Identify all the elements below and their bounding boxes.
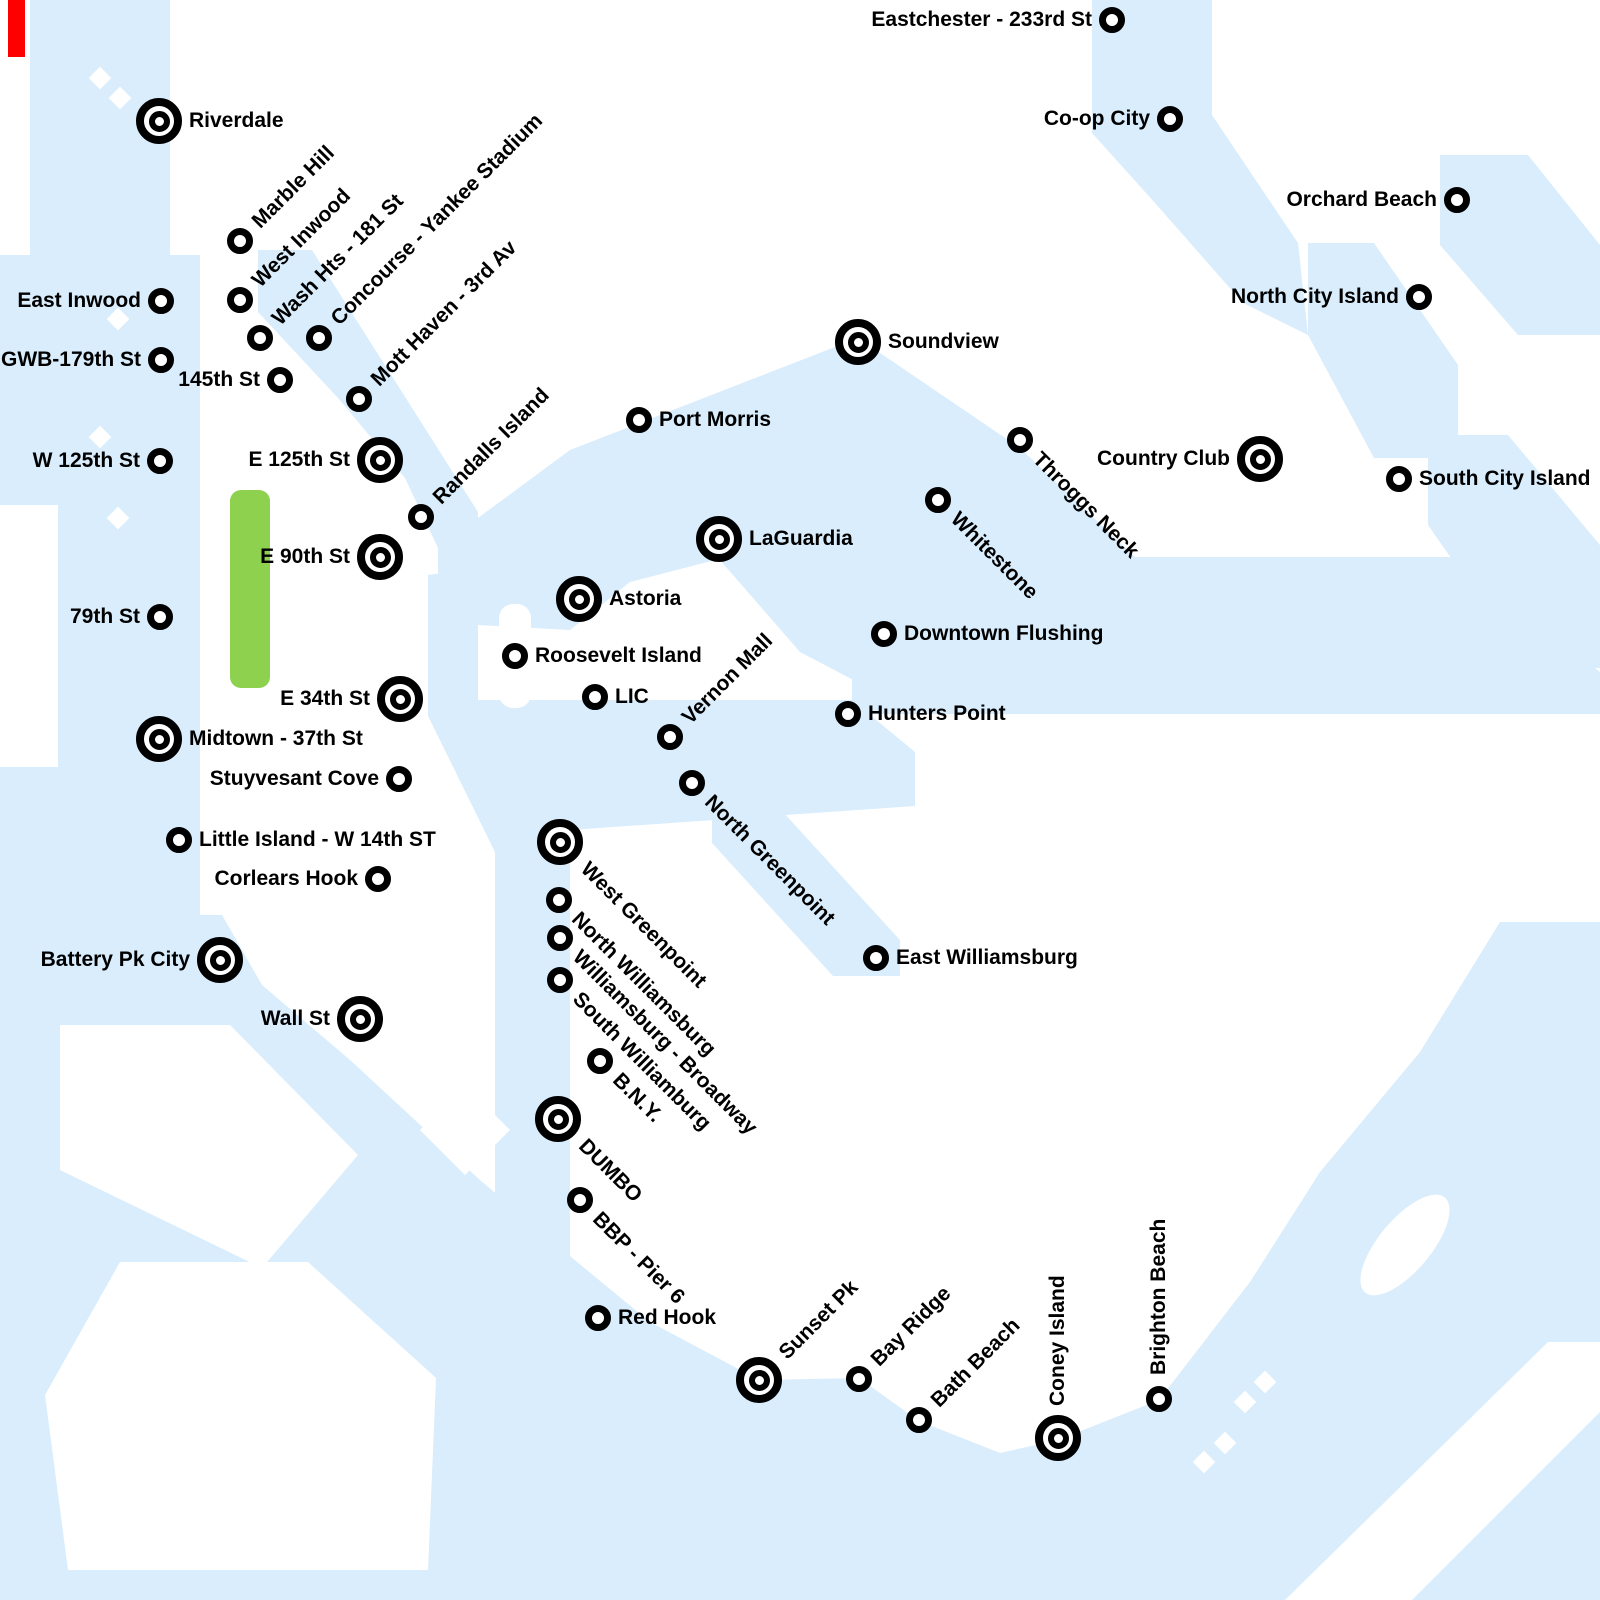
terminal-bullseye-marker[interactable] [337, 996, 383, 1042]
terminal-bullseye-marker[interactable] [197, 937, 243, 983]
stop-circle-marker[interactable] [148, 347, 174, 373]
stop-circle-marker[interactable] [679, 770, 705, 796]
station-label: Orchard Beach [1286, 189, 1437, 211]
stop-circle-marker[interactable] [148, 288, 174, 314]
station-label: LaGuardia [749, 528, 853, 550]
stop-circle-marker[interactable] [626, 407, 652, 433]
station-label: East Inwood [17, 290, 141, 312]
station-label: E 34th St [280, 688, 370, 710]
stop-circle-marker[interactable] [147, 604, 173, 630]
bullseye-inner-ring [569, 589, 590, 610]
terminal-bullseye-marker[interactable] [1035, 1415, 1081, 1461]
stop-circle-marker[interactable] [502, 643, 528, 669]
station-label: 145th St [178, 369, 260, 391]
city-island-channel [1308, 243, 1458, 458]
station-label: E 90th St [260, 546, 350, 568]
stop-circle-marker[interactable] [1157, 106, 1183, 132]
station-label: Country Club [1097, 448, 1230, 470]
station-label: 79th St [70, 606, 140, 628]
stop-circle-marker[interactable] [306, 325, 332, 351]
station-label: Hunters Point [868, 703, 1006, 725]
stop-circle-marker[interactable] [835, 701, 861, 727]
stop-circle-marker[interactable] [247, 325, 273, 351]
station-label: Battery Pk City [41, 949, 190, 971]
stop-circle-marker[interactable] [346, 386, 372, 412]
bullseye-inner-ring [550, 832, 571, 853]
terminal-bullseye-marker[interactable] [696, 516, 742, 562]
terminal-bullseye-marker[interactable] [136, 716, 182, 762]
station-label: East Williamsburg [896, 947, 1078, 969]
station-label: Little Island - W 14th ST [199, 829, 436, 851]
stop-circle-marker[interactable] [567, 1187, 593, 1213]
central-park [230, 490, 270, 688]
bullseye-inner-ring [210, 950, 231, 971]
station-label: Port Morris [659, 409, 771, 431]
station-label: Downtown Flushing [904, 623, 1103, 645]
bullseye-inner-ring [548, 1109, 569, 1130]
bullseye-inner-ring [1250, 449, 1271, 470]
station-label: North City Island [1231, 286, 1399, 308]
terminal-bullseye-marker[interactable] [736, 1357, 782, 1403]
stop-circle-marker[interactable] [147, 448, 173, 474]
station-label: Co-op City [1044, 108, 1150, 130]
bullseye-inner-ring [390, 689, 411, 710]
station-label: Soundview [888, 331, 999, 353]
terminal-bullseye-marker[interactable] [136, 98, 182, 144]
stop-circle-marker[interactable] [585, 1305, 611, 1331]
station-label: Coney Island [1047, 1275, 1069, 1406]
stop-circle-marker[interactable] [267, 367, 293, 393]
terminal-bullseye-marker[interactable] [357, 437, 403, 483]
stop-circle-marker[interactable] [846, 1366, 872, 1392]
stop-circle-marker[interactable] [166, 827, 192, 853]
station-label: GWB-179th St [1, 349, 141, 371]
stop-circle-marker[interactable] [386, 766, 412, 792]
station-label: Riverdale [189, 110, 284, 132]
station-label: Roosevelt Island [535, 645, 702, 667]
stop-circle-marker[interactable] [1146, 1386, 1172, 1412]
stop-circle-marker[interactable] [365, 866, 391, 892]
bullseye-inner-ring [370, 547, 391, 568]
stop-circle-marker[interactable] [906, 1407, 932, 1433]
stop-circle-marker[interactable] [1386, 466, 1412, 492]
terminal-bullseye-marker[interactable] [357, 534, 403, 580]
stop-circle-marker[interactable] [547, 967, 573, 993]
stop-circle-marker[interactable] [547, 925, 573, 951]
bullseye-inner-ring [709, 529, 730, 550]
stop-circle-marker[interactable] [657, 724, 683, 750]
station-label: Eastchester - 233rd St [871, 9, 1092, 31]
station-label: Astoria [609, 588, 681, 610]
stop-circle-marker[interactable] [408, 504, 434, 530]
bullseye-inner-ring [149, 111, 170, 132]
top-right-inlet [1440, 155, 1600, 335]
stop-circle-marker[interactable] [925, 487, 951, 513]
stop-circle-marker[interactable] [1406, 284, 1432, 310]
station-label: E 125th St [248, 449, 350, 471]
stop-circle-marker[interactable] [871, 621, 897, 647]
terminal-bullseye-marker[interactable] [537, 819, 583, 865]
station-label: South City Island [1419, 468, 1591, 490]
stop-circle-marker[interactable] [546, 887, 572, 913]
stop-circle-marker[interactable] [1007, 427, 1033, 453]
left-shore-notch [0, 505, 58, 767]
station-label: Stuyvesant Cove [210, 768, 379, 790]
stop-circle-marker[interactable] [587, 1048, 613, 1074]
ferry-map: Eastchester - 233rd StRiverdaleCo-op Cit… [0, 0, 1600, 1600]
terminal-bullseye-marker[interactable] [535, 1096, 581, 1142]
station-label: Corlears Hook [214, 868, 358, 890]
stop-circle-marker[interactable] [1099, 7, 1125, 33]
red-marker [8, 0, 25, 57]
station-label: Midtown - 37th St [189, 728, 363, 750]
bullseye-inner-ring [848, 332, 869, 353]
station-label: LIC [615, 686, 649, 708]
stop-circle-marker[interactable] [227, 228, 253, 254]
station-label: Wall St [261, 1008, 330, 1030]
station-label: Red Hook [618, 1307, 716, 1329]
terminal-bullseye-marker[interactable] [556, 576, 602, 622]
stop-circle-marker[interactable] [863, 945, 889, 971]
bullseye-inner-ring [370, 450, 391, 471]
bullseye-inner-ring [149, 729, 170, 750]
terminal-bullseye-marker[interactable] [1237, 436, 1283, 482]
bullseye-inner-ring [350, 1009, 371, 1030]
terminal-bullseye-marker[interactable] [835, 319, 881, 365]
stop-circle-marker[interactable] [582, 684, 608, 710]
stop-circle-marker[interactable] [227, 287, 253, 313]
stop-circle-marker[interactable] [1444, 187, 1470, 213]
station-label: Brighton Beach [1148, 1219, 1170, 1375]
terminal-bullseye-marker[interactable] [377, 676, 423, 722]
bullseye-inner-ring [1048, 1428, 1069, 1449]
station-label: W 125th St [33, 450, 140, 472]
bullseye-inner-ring [749, 1370, 770, 1391]
